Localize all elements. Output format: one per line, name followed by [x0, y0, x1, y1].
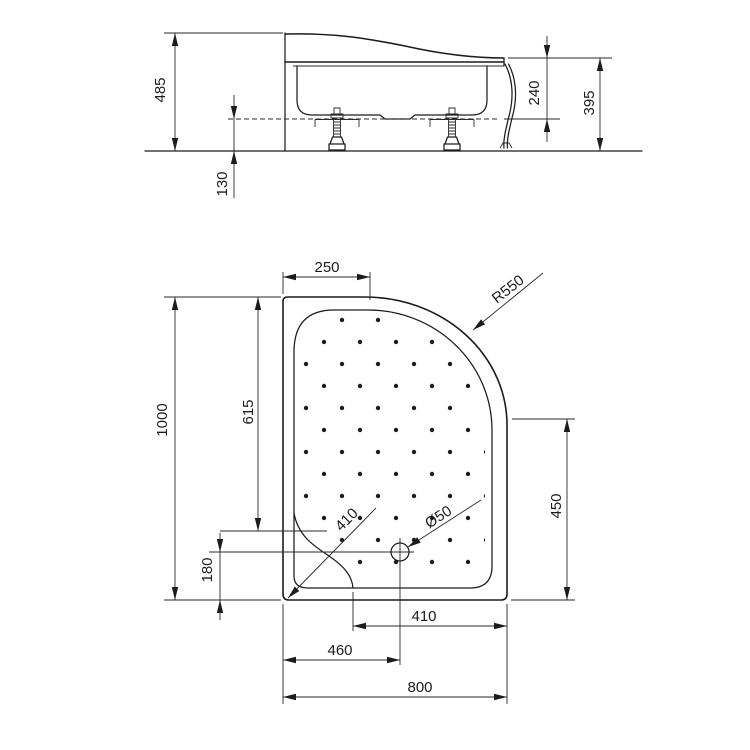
side-view: 485 130 240 395	[145, 33, 642, 198]
dim-240: 240	[504, 36, 612, 142]
foot-threaded-rod	[334, 118, 341, 137]
foot-base	[329, 137, 345, 150]
side-top-curve	[285, 34, 504, 58]
foot-threaded-rod	[449, 118, 456, 137]
dim-180-label: 180	[199, 557, 216, 582]
foot-base	[444, 137, 460, 150]
dim-250-label: 250	[314, 259, 339, 276]
adjustable-foot-left	[315, 108, 359, 150]
foot-bolt	[446, 108, 458, 118]
dim-1000: 1000	[154, 297, 281, 600]
dim-130-label: 130	[214, 171, 231, 196]
dim-240-label: 240	[526, 80, 543, 105]
foot-rail	[315, 120, 359, 128]
dim-130: 130	[214, 95, 234, 198]
dim-250-extensions	[283, 272, 370, 300]
adjustable-foot-right	[430, 108, 474, 150]
dim-800-label: 800	[407, 679, 432, 696]
dim-450: 450	[511, 419, 575, 600]
dim-800-extensions	[283, 604, 507, 704]
apron-foot	[500, 143, 512, 148]
foot-rail	[430, 120, 474, 128]
dim-410-bottom: 410	[353, 592, 507, 631]
dim-460-label: 460	[327, 642, 352, 659]
anti-slip-dots	[302, 317, 485, 581]
technical-drawing-canvas: 485 130 240 395	[0, 0, 750, 750]
dim-485-label: 485	[152, 77, 169, 102]
side-vessel-outline	[297, 66, 487, 119]
dim-250: 250	[283, 259, 370, 300]
plan-view: 250 R550 1000 615 180	[154, 259, 575, 704]
dim-800: 800	[283, 604, 507, 704]
dim-395: 395	[581, 58, 600, 151]
dim-450-extensions	[511, 419, 575, 600]
dim-450-label: 450	[548, 493, 565, 518]
dim-1000-extensions	[164, 297, 281, 600]
dim-r550: R550	[473, 272, 543, 330]
shower-tray-drawing: 485 130 240 395	[0, 0, 750, 750]
dim-615-label: 615	[240, 399, 257, 424]
foot-bolt	[331, 108, 343, 118]
dim-410-label: 410	[411, 608, 436, 625]
dim-1000-label: 1000	[154, 403, 171, 436]
dim-395-label: 395	[581, 90, 598, 115]
dim-485: 485	[152, 33, 283, 151]
